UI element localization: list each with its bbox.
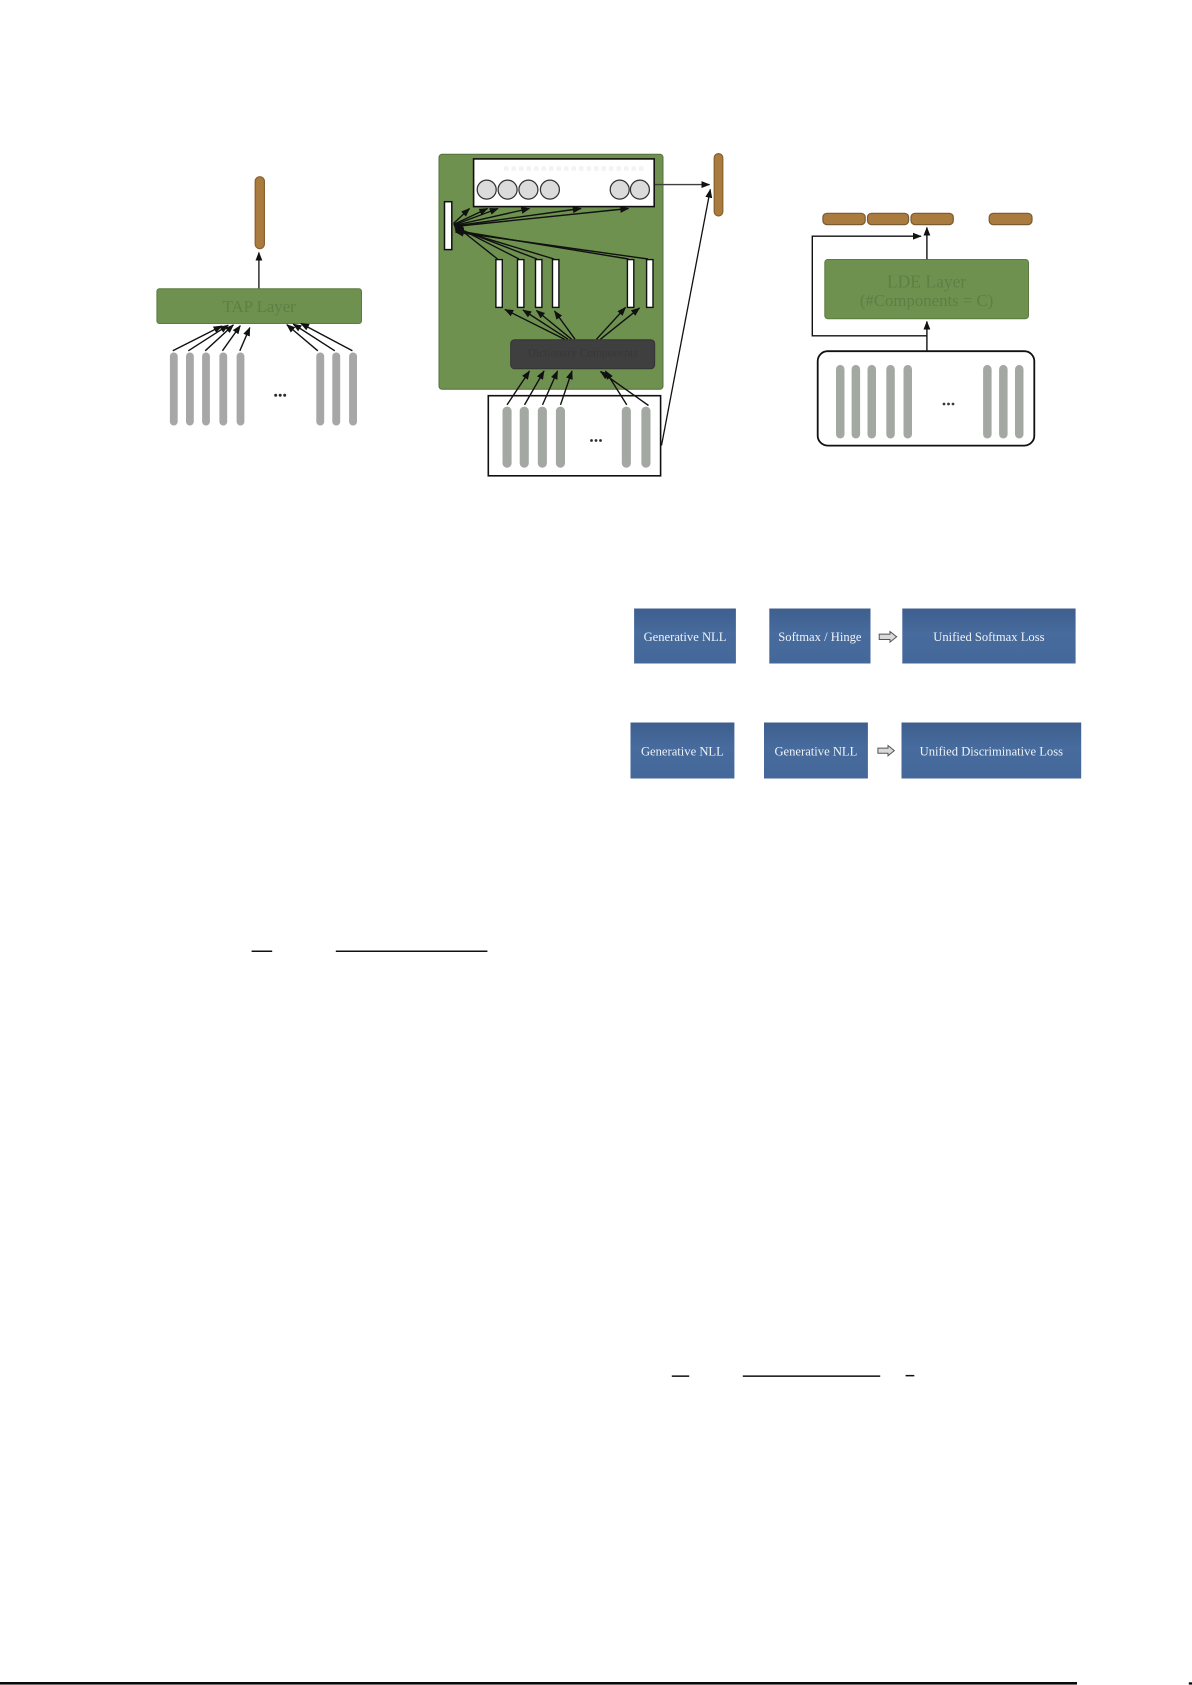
svg-text:Dictionary Components: Dictionary Components (528, 348, 639, 360)
svg-text:LDE Layer: LDE Layer (887, 272, 966, 292)
svg-text:Unified Discriminative Loss: Unified Discriminative Loss (920, 745, 1064, 759)
svg-text:Unified Softmax Loss: Unified Softmax Loss (933, 630, 1044, 644)
svg-text:Generative NLL: Generative NLL (644, 630, 727, 644)
svg-text:TAP Layer: TAP Layer (223, 297, 296, 316)
svg-text:(#Components = C): (#Components = C) (860, 291, 993, 310)
svg-text:Softmax / Hinge: Softmax / Hinge (778, 630, 862, 644)
svg-text:Generative NLL: Generative NLL (641, 745, 724, 759)
svg-text:Generative NLL: Generative NLL (774, 745, 857, 759)
